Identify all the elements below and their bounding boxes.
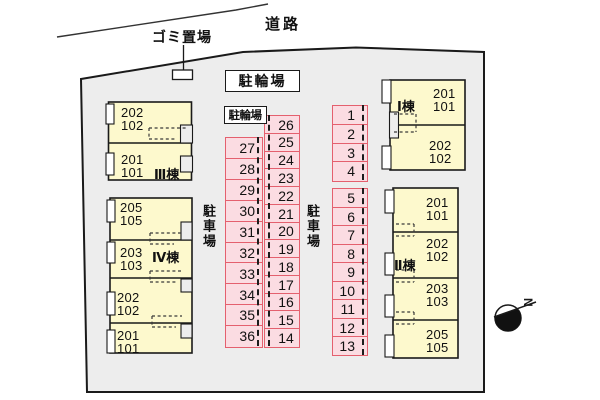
compass-north-letter: N — [521, 298, 535, 307]
stall-dash-guide — [257, 137, 259, 346]
bicycle-parking-box: 駐輪場 — [225, 70, 300, 92]
unit-number: 201 101 — [121, 153, 144, 180]
car-parking-label-left: 駐車場 — [202, 204, 215, 249]
building-4-label: Ⅳ棟 — [152, 247, 179, 266]
car-parking-label-right: 駐車場 — [306, 204, 319, 249]
unit-number: 202 102 — [121, 106, 144, 133]
building-2-label: Ⅱ棟 — [394, 255, 416, 274]
unit-number: 201 101 — [426, 196, 449, 223]
unit-number: 205 105 — [120, 201, 143, 228]
unit-number: 202 102 — [426, 237, 449, 264]
bicycle-parking-label: 駐輪場 — [239, 71, 287, 91]
garbage-station-rect — [173, 70, 193, 80]
garbage-station-label: ゴミ置場 — [152, 30, 212, 44]
building-1-label: Ⅰ棟 — [397, 96, 415, 115]
bicycle-parking-box-small: 駐輪場 — [224, 106, 267, 124]
unit-number: 203 103 — [120, 246, 143, 273]
unit-number: 205 105 — [426, 328, 449, 355]
unit-number: 202 102 — [429, 139, 452, 166]
stall-dash-guide — [268, 115, 270, 346]
road-label: 道路 — [265, 17, 301, 32]
unit-number: 203 103 — [426, 282, 449, 309]
bicycle-parking-label-small: 駐輪場 — [229, 107, 262, 123]
stall-dash-guide — [362, 105, 364, 180]
stall-dash-guide — [362, 188, 364, 355]
site-plan: N 道路 ゴミ置場 272829303132333435362625242322… — [0, 0, 600, 400]
unit-number: 201 101 — [117, 329, 140, 356]
site-plan-drawing: N — [0, 0, 600, 400]
unit-number: 202 102 — [117, 291, 140, 318]
compass-icon: N — [492, 298, 537, 334]
building-3-label: Ⅲ棟 — [154, 164, 179, 183]
building-3-outline — [106, 102, 193, 180]
unit-number: 201 101 — [433, 87, 456, 114]
